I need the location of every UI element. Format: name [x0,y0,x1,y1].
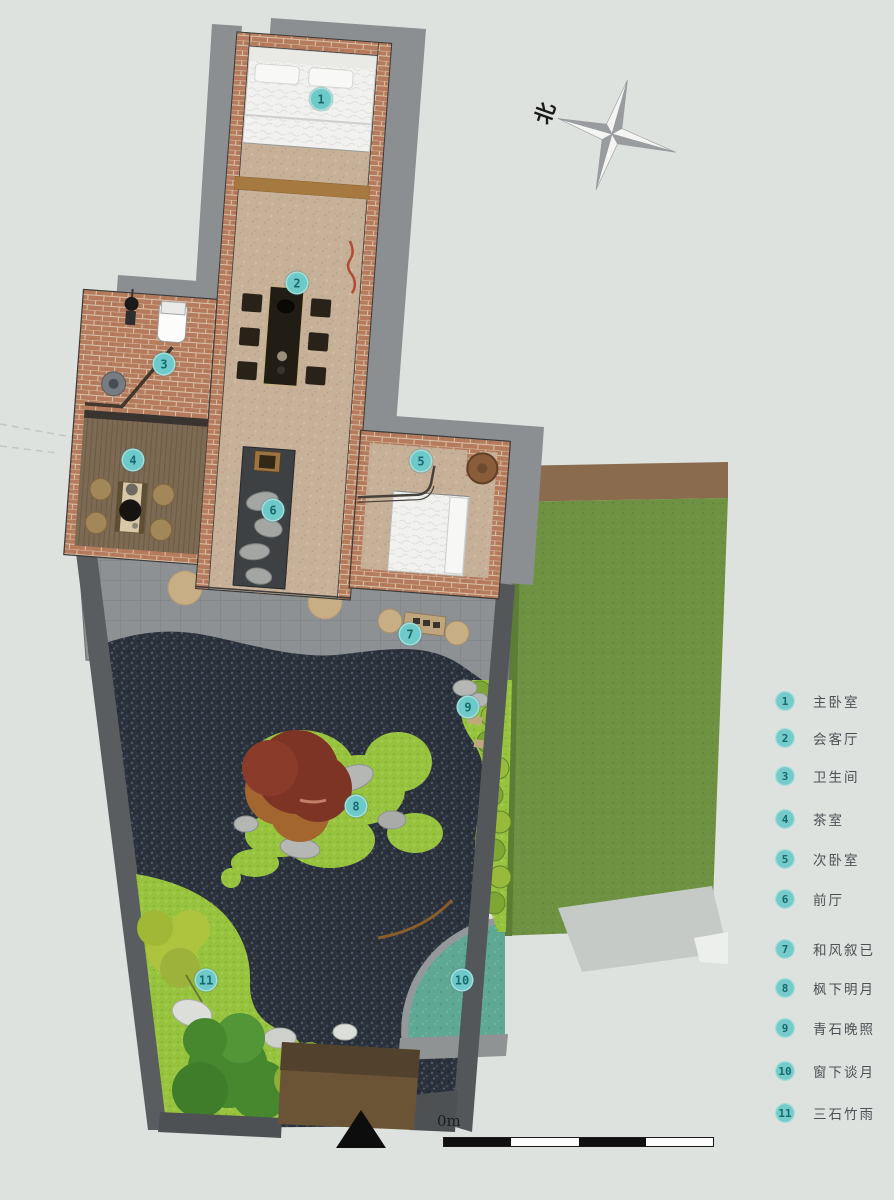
west-annex [64,285,218,564]
plan-marker-3: 3 [153,353,176,376]
legend-badge: 8 [775,978,795,998]
plan-marker-7: 7 [399,623,422,646]
legend-label: 前厅 [813,889,844,909]
secondary-bed [387,491,469,576]
legend-label: 青石晚照 [813,1018,875,1038]
legend-item: 4 茶室 [775,808,844,830]
legend-label: 茶室 [813,809,844,829]
legend-item: 3 卫生间 [775,765,860,787]
plan-marker-1: 1 [310,88,333,111]
plan-marker-2: 2 [286,272,309,295]
legend-label: 三石竹雨 [813,1103,875,1123]
legend-badge: 6 [775,889,795,909]
toilet [157,301,188,343]
legend-badge: 9 [775,1018,795,1038]
legend-label: 主卧室 [813,691,860,711]
legend-label: 和风叙已 [813,939,875,959]
legend-badge: 3 [775,766,795,786]
site-plan-canvas: 北 1 2 3 4 5 6 7 8 9 10 11 1 主卧室 2 会客厅 3 … [0,0,894,1200]
plan-marker-4: 4 [122,449,145,472]
legend-item: 11 三石竹雨 [775,1102,875,1124]
scale-bar [443,1137,714,1147]
legend-item: 7 和风叙已 [775,938,875,960]
building [62,22,539,611]
legend-badge: 11 [775,1103,795,1123]
reception-table-set [236,284,332,388]
legend-item: 9 青石晚照 [775,1017,875,1039]
legend-item: 6 前厅 [775,888,844,910]
legend-item: 8 枫下明月 [775,977,875,999]
garden [75,545,515,1148]
legend-badge: 10 [775,1061,795,1081]
entrance-gate [278,1042,420,1130]
legend-item: 2 会客厅 [775,727,860,749]
plan-marker-5: 5 [410,450,433,473]
legend-label: 会客厅 [813,728,860,748]
floor-cushion [445,621,469,645]
legend-label: 枫下明月 [813,978,875,998]
legend-label: 次卧室 [813,849,860,869]
legend-item: 5 次卧室 [775,848,860,870]
legend-badge: 2 [775,728,795,748]
legend-item: 1 主卧室 [775,690,860,712]
legend-badge: 4 [775,809,795,829]
site-plan-drawing [0,0,894,1200]
legend-badge: 5 [775,849,795,869]
scale-origin-label: 0m [437,1112,461,1130]
plan-marker-10: 10 [451,969,474,992]
plan-marker-11: 11 [195,969,218,992]
north-compass [542,65,691,208]
legend-item: 10 窗下谈月 [775,1060,875,1082]
legend-badge: 1 [775,691,795,711]
plan-marker-8: 8 [345,795,368,818]
legend-badge: 7 [775,939,795,959]
legend-label: 卫生间 [813,766,860,786]
legend-label: 窗下谈月 [813,1061,875,1081]
plan-marker-9: 9 [457,696,480,719]
plan-marker-6: 6 [262,499,285,522]
